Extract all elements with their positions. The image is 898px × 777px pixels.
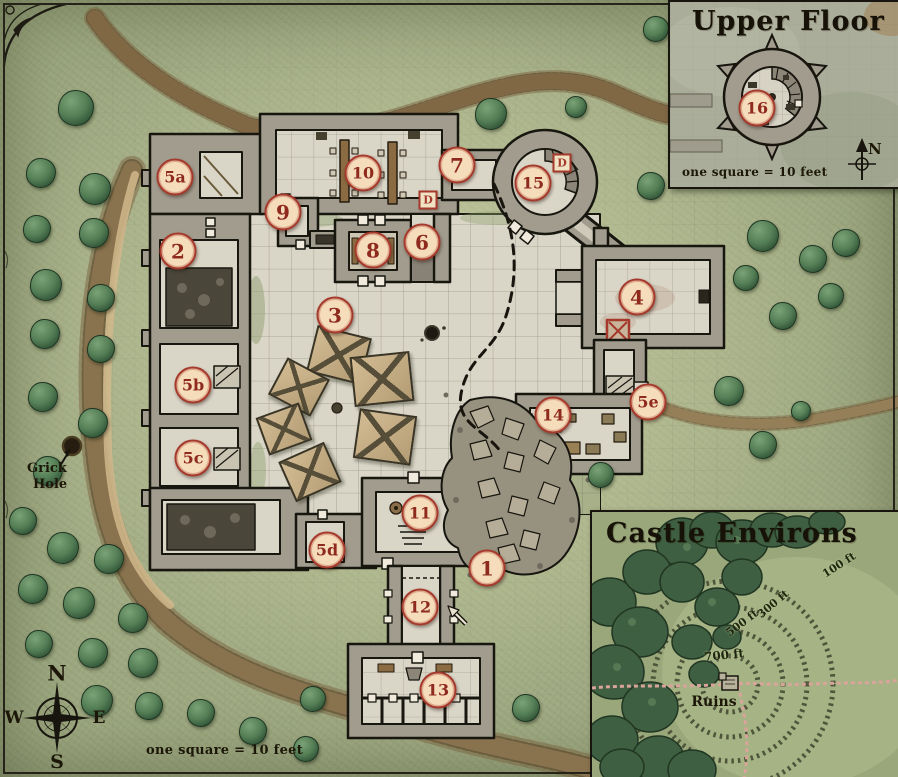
castle-map: Upper Floor one square = 10 feet N <box>0 0 898 777</box>
corner-filigree <box>4 4 66 518</box>
upper-floor-compass-n: N <box>868 140 882 158</box>
environs-title: Castle Environs <box>606 518 858 549</box>
ruins-label: Ruins <box>691 694 736 710</box>
upper-floor-scale: one square = 10 feet <box>682 165 827 179</box>
upper-floor-title: Upper Floor <box>692 6 885 37</box>
ruins-icon <box>719 673 738 690</box>
grick-hole <box>60 437 81 466</box>
compass-rose <box>23 682 91 753</box>
upper-floor-inset: Upper Floor one square = 10 feet N <box>668 0 898 189</box>
castle-environs-inset: Castle Environs 100 ft 300 ft 500 ft 700… <box>590 510 898 777</box>
